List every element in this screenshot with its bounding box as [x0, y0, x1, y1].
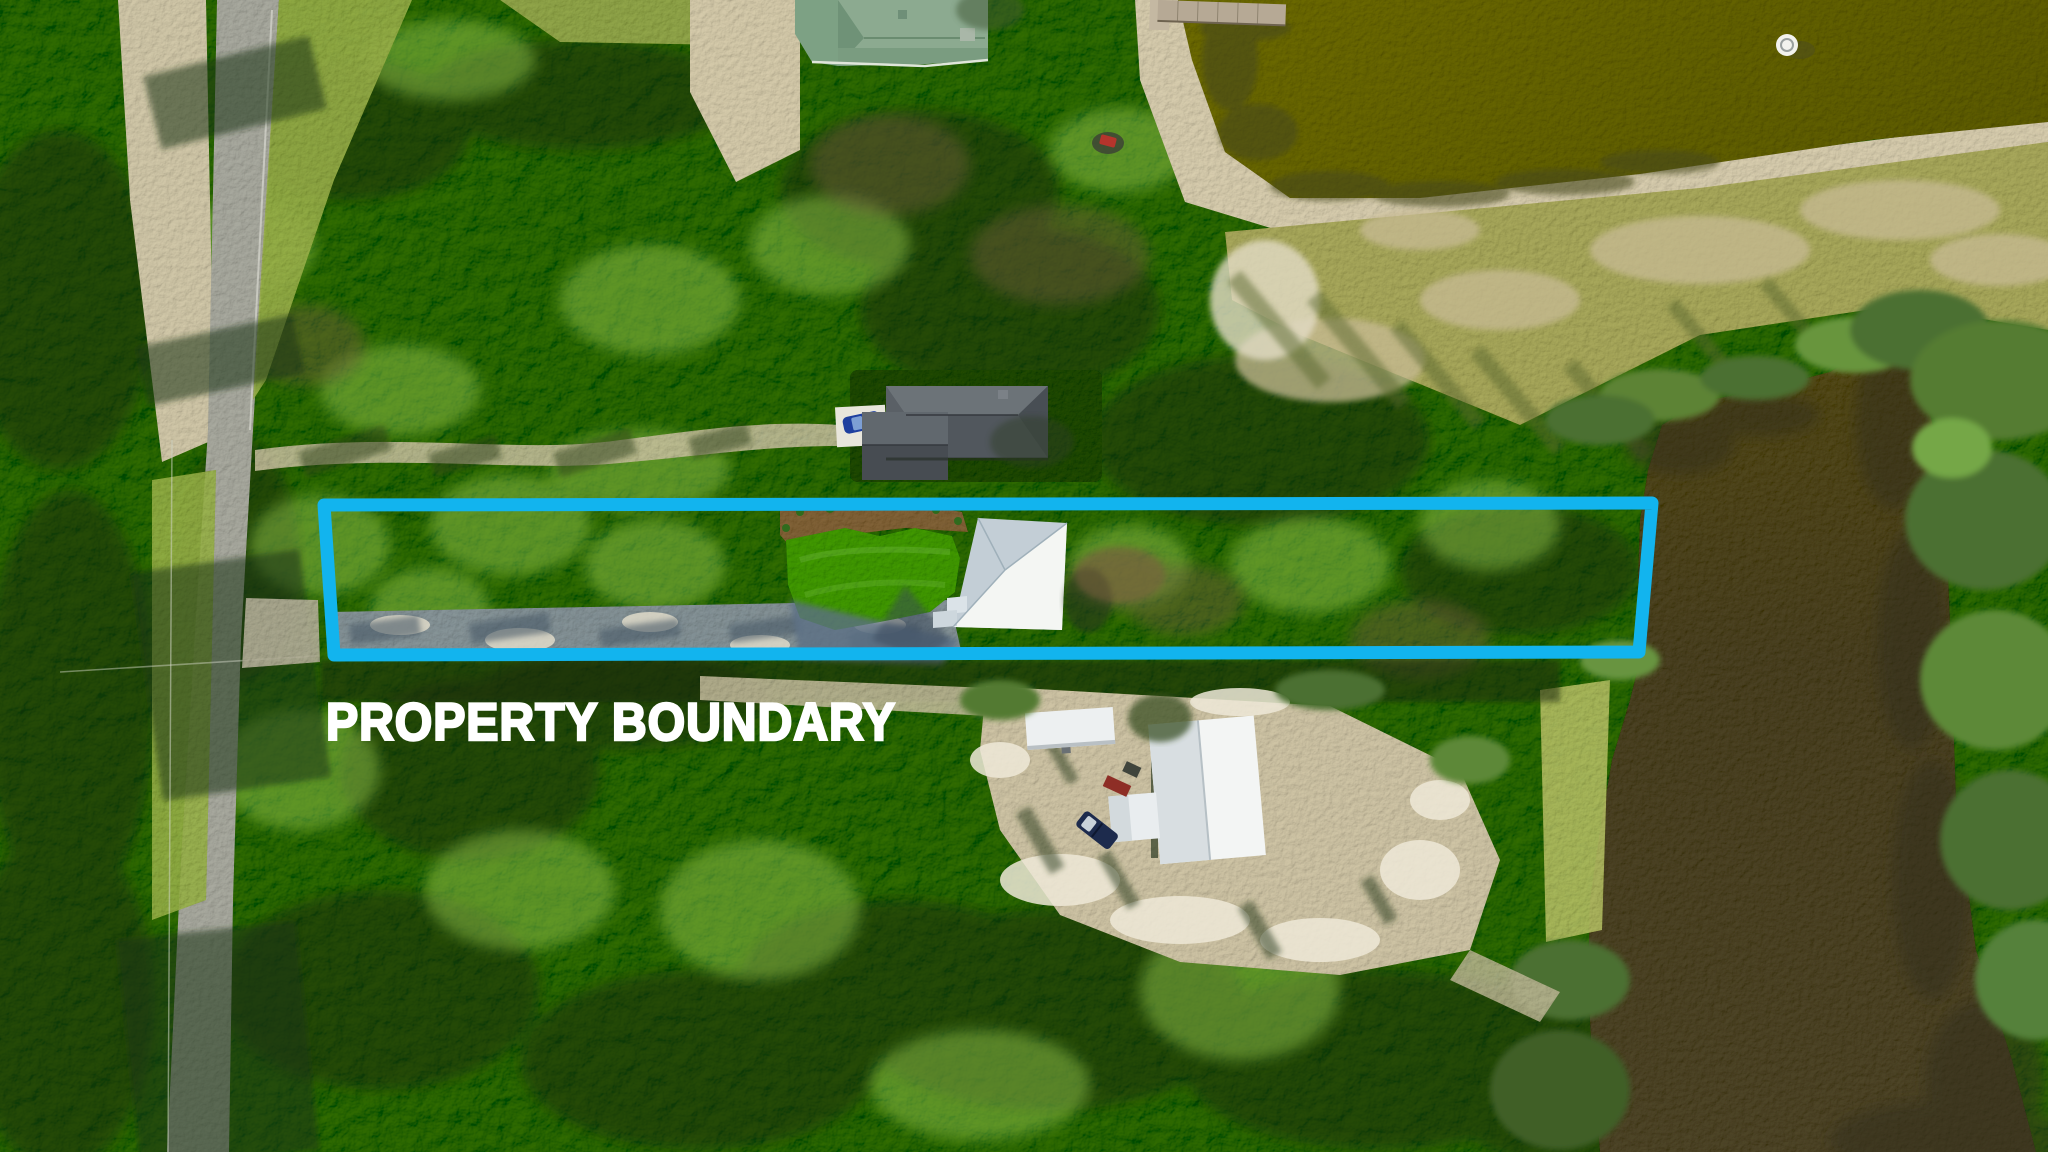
atv	[1092, 132, 1124, 154]
property-boundary-label: PROPERTY BOUNDARY	[326, 693, 896, 752]
lakeside-grass	[1540, 680, 1610, 942]
aerial-photo: PROPERTY BOUNDARY	[0, 0, 2048, 1152]
gray-roof-house-lot	[835, 370, 1102, 482]
aerial-photo-canvas: PROPERTY BOUNDARY	[0, 0, 2048, 1152]
